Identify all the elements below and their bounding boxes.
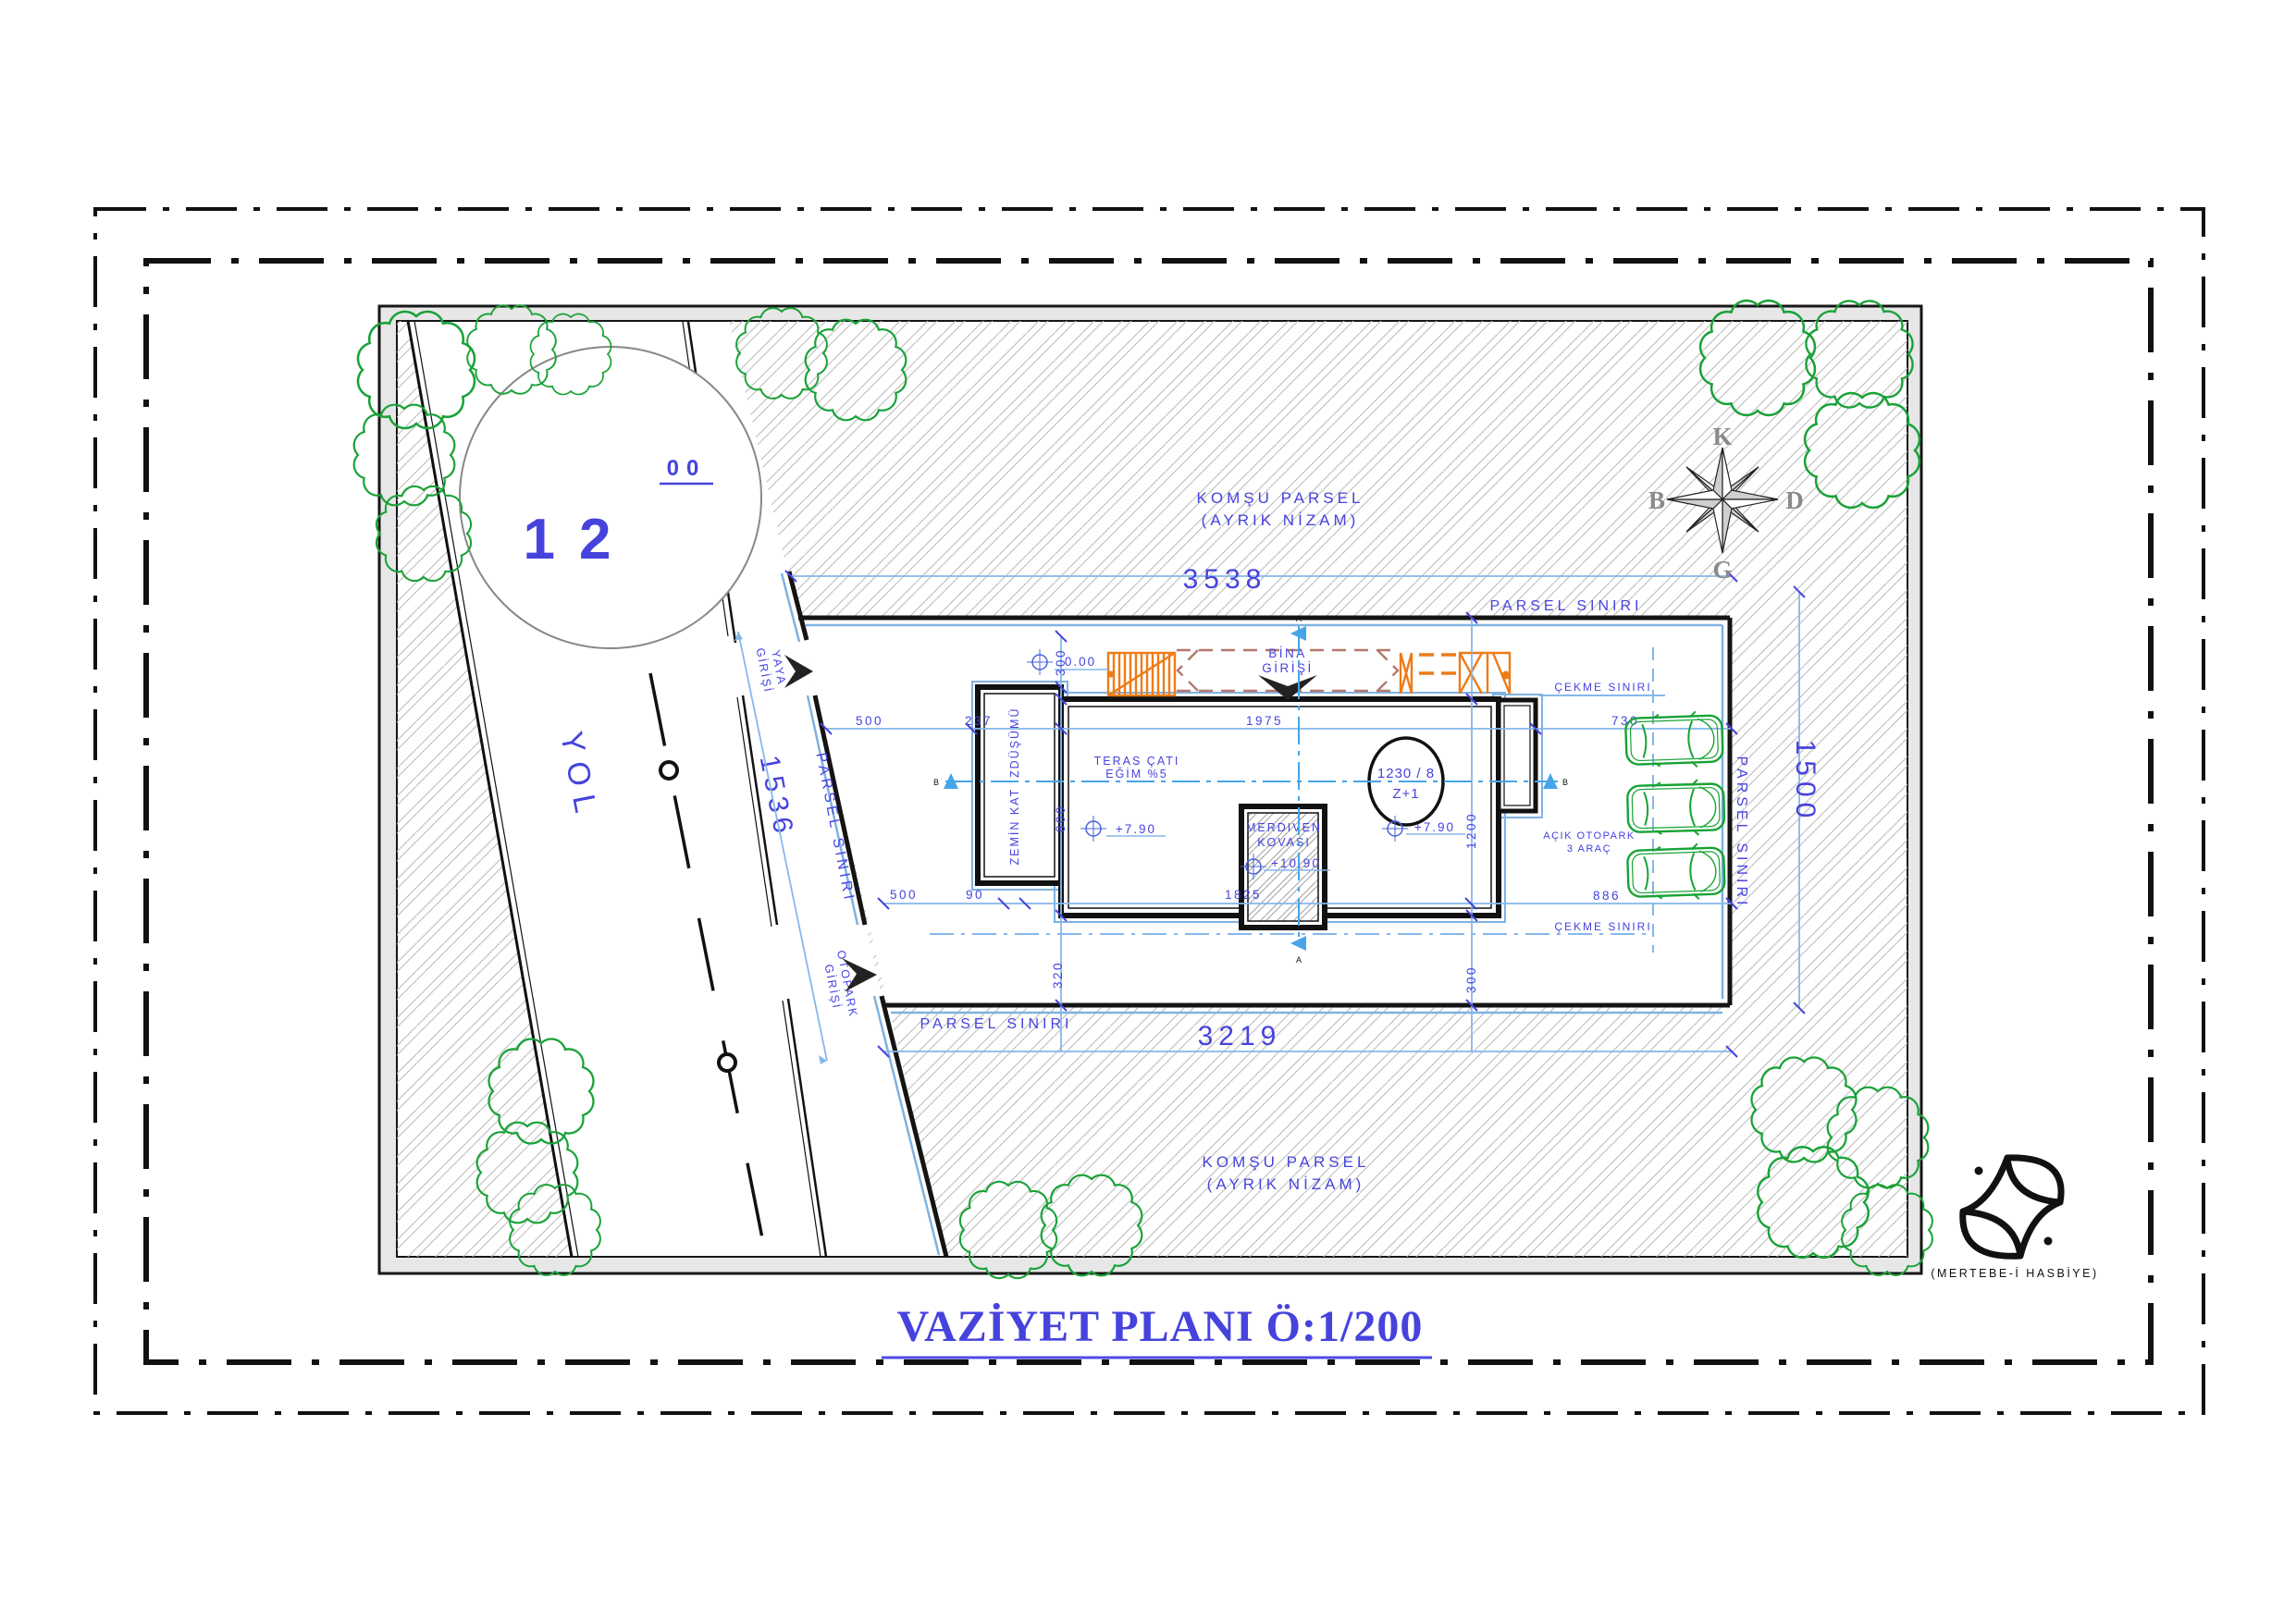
- parsel-siniri-right: PARSEL SINIRI: [1734, 756, 1749, 909]
- section-a-label: A: [1296, 614, 1302, 623]
- compass-south: G: [1712, 556, 1732, 584]
- cekme-siniri-bottom: ÇEKME SINIRI: [1554, 920, 1651, 933]
- dim-500b: 500: [890, 888, 918, 902]
- firm-logo-text: (MERTEBE-İ HASBİYE): [1931, 1267, 2098, 1280]
- level-790-right: +7.90: [1414, 820, 1455, 834]
- stair-label-1: MERDIVEN: [1246, 821, 1322, 834]
- dim-500a: 500: [856, 714, 883, 728]
- road-centerline-node: [719, 1054, 735, 1071]
- dim-1200: 1200: [1464, 812, 1478, 849]
- firm-logo: (MERTEBE-İ HASBİYE): [1931, 1158, 2098, 1280]
- drawing-title: VAZİYET PLANI Ö:1/200: [882, 1302, 1432, 1358]
- drawing-sheet: 12 00 YOL 1536: [0, 0, 2296, 1623]
- dim-320: 320: [1051, 961, 1065, 989]
- stair-label-2: KOVASI: [1257, 836, 1311, 849]
- dim-800: 800: [1054, 805, 1068, 832]
- road-centerline-node: [660, 762, 677, 779]
- dim-886: 886: [1593, 889, 1621, 903]
- parsel-siniri-top: PARSEL SINIRI: [1490, 598, 1643, 614]
- compass-east: D: [1785, 486, 1804, 514]
- komsu-parsel-top-2: (AYRIK NİZAM): [1202, 511, 1360, 529]
- acik-otopark-1: AÇIK OTOPARK: [1543, 830, 1636, 842]
- cekme-siniri-top: ÇEKME SINIRI: [1554, 681, 1651, 694]
- dim-1825: 1825: [1225, 888, 1262, 902]
- level-zero: 0.00: [1065, 655, 1096, 669]
- level-1090: +10.90: [1271, 856, 1321, 870]
- dim-300-bottom: 300: [1464, 965, 1478, 993]
- building-entrance-label-2: GİRİŞİ: [1262, 661, 1314, 675]
- site-plan-drawing: 12 00 YOL 1536: [0, 0, 2296, 1623]
- dim-3538: 3538: [1183, 564, 1267, 595]
- komsu-parsel-bottom-2: (AYRIK NİZAM): [1207, 1175, 1365, 1193]
- lot-floors: Z+1: [1392, 786, 1419, 802]
- road-width-number: 12: [524, 508, 636, 572]
- roof-label-1: TERAS ÇATI: [1094, 755, 1180, 768]
- title-text: VAZİYET PLANI Ö:1/200: [897, 1302, 1424, 1351]
- section-b-label: B: [933, 778, 939, 787]
- dim-300-top: 300: [1054, 648, 1068, 676]
- komsu-parsel-bottom-1: KOMŞU PARSEL: [1203, 1153, 1370, 1171]
- dim-1500: 1500: [1790, 740, 1821, 824]
- ground-floor-label: ZEMİN KAT İZDÜŞÜMÜ: [1008, 707, 1021, 866]
- roof-label-2: EĞİM %5: [1105, 767, 1168, 781]
- compass-west: B: [1648, 486, 1665, 514]
- section-b-label: B: [1562, 778, 1568, 787]
- building-entrance-label-1: BİNA: [1268, 646, 1307, 660]
- dim-730: 730: [1611, 714, 1639, 728]
- dim-3219: 3219: [1198, 1021, 1282, 1051]
- dim-1975: 1975: [1246, 714, 1283, 728]
- road-width-bubble: [460, 347, 761, 648]
- section-a-label: A: [1296, 955, 1302, 965]
- acik-otopark-2: 3 ARAÇ: [1567, 843, 1611, 855]
- road-width-sup: 00: [667, 456, 707, 481]
- level-790-left: +7.90: [1116, 822, 1156, 836]
- parsel-siniri-bottom: PARSEL SINIRI: [920, 1016, 1073, 1032]
- compass-north: K: [1712, 423, 1732, 450]
- lot-number: 1230 / 8: [1377, 766, 1435, 781]
- komsu-parsel-top-1: KOMŞU PARSEL: [1197, 489, 1364, 507]
- dim-237: 237: [965, 714, 993, 728]
- dim-90: 90: [966, 888, 984, 902]
